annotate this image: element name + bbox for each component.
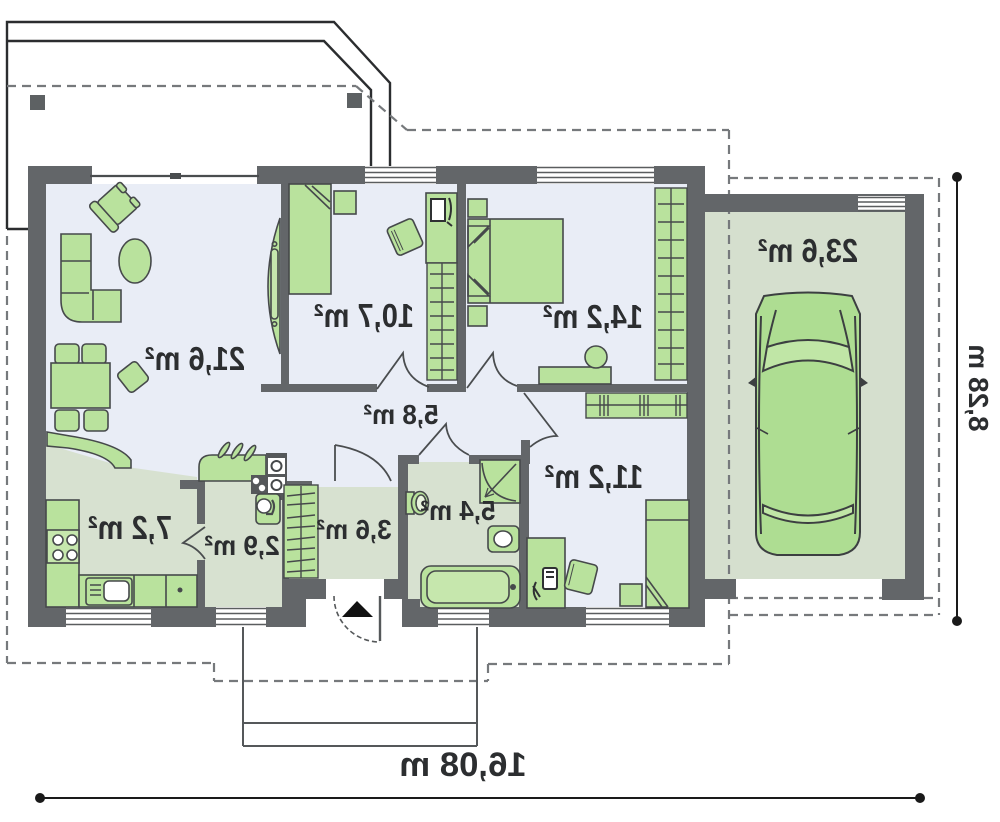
svg-text:8,28 m: 8,28 m (963, 344, 994, 431)
svg-text:3,6 m²: 3,6 m² (316, 514, 391, 545)
svg-text:5,8 m²: 5,8 m² (363, 399, 438, 430)
svg-text:23,6 m²: 23,6 m² (758, 232, 858, 269)
svg-text:7,2 m²: 7,2 m² (88, 509, 172, 546)
svg-text:2,9 m²: 2,9 m² (204, 530, 279, 561)
svg-text:14,2 m²: 14,2 m² (543, 298, 643, 335)
svg-text:21,6 m²: 21,6 m² (145, 340, 245, 377)
svg-text:11,2 m²: 11,2 m² (545, 458, 643, 495)
svg-text:10,7 m²: 10,7 m² (314, 297, 414, 334)
svg-text:5,4 m²: 5,4 m² (420, 495, 495, 526)
svg-text:16,08 m: 16,08 m (399, 746, 526, 784)
